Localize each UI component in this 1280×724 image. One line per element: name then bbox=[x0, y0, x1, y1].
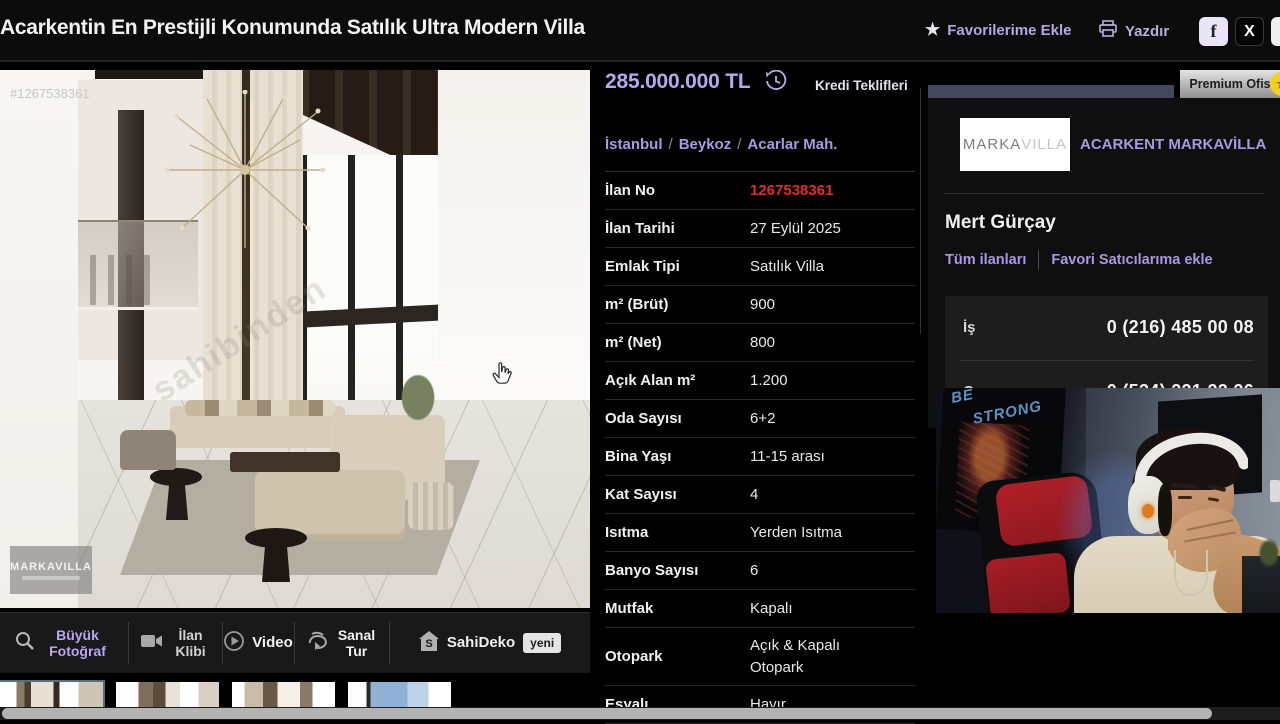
share-icon-partial[interactable] bbox=[1271, 17, 1280, 46]
table-row: Emlak TipiSatılık Villa bbox=[605, 248, 915, 286]
listing-details: 285.000.000 TL Kredi Teklifleri İstanbul… bbox=[605, 70, 915, 724]
breadcrumb-neighborhood[interactable]: Acarlar Mah. bbox=[747, 136, 837, 153]
work-phone-number: 0 (216) 485 00 08 bbox=[1107, 317, 1254, 338]
work-phone-label: İş bbox=[963, 319, 976, 336]
breadcrumb: İstanbul/Beykoz/Acarlar Mah. bbox=[605, 136, 915, 153]
table-row: IsıtmaYerden Isıtma bbox=[605, 514, 915, 552]
table-row: İlan Tarihi27 Eylül 2025 bbox=[605, 210, 915, 248]
add-favorite-seller-link[interactable]: Favori Satıcılarıma ekle bbox=[1051, 252, 1212, 268]
work-phone-row: İş 0 (216) 485 00 08 bbox=[945, 296, 1268, 358]
person-eye bbox=[1178, 496, 1192, 499]
headphone-earcup-dark bbox=[1158, 484, 1172, 536]
table-row: OtoparkAçık & Kapalı Otopark bbox=[605, 628, 915, 686]
photo-toolbar: Büyük Fotoğraf İlan Klibi Video Sanal Tu… bbox=[0, 612, 590, 673]
x-share-icon[interactable]: X bbox=[1235, 17, 1264, 46]
premium-star-icon: ★ bbox=[1270, 72, 1280, 96]
photo-pillows bbox=[185, 400, 335, 416]
wall-outlet bbox=[1270, 480, 1280, 502]
video-camera-icon bbox=[141, 634, 163, 653]
photo-side-table-2-leg bbox=[262, 542, 290, 582]
column-divider bbox=[920, 88, 921, 334]
virtual-tour-button[interactable]: Sanal Tur bbox=[295, 613, 389, 673]
credit-offers-link[interactable]: Kredi Teklifleri bbox=[815, 78, 908, 93]
divider bbox=[1038, 250, 1039, 270]
table-row: Banyo Sayısı6 bbox=[605, 552, 915, 590]
table-row: Oda Sayısı6+2 bbox=[605, 400, 915, 438]
print-label: Yazdır bbox=[1125, 23, 1169, 40]
facebook-share-icon[interactable]: f bbox=[1199, 17, 1228, 46]
table-row: m² (Brüt)900 bbox=[605, 286, 915, 324]
premium-office-badge: Premium Ofis ★ bbox=[1180, 70, 1280, 98]
big-photo-button[interactable]: Büyük Fotoğraf bbox=[0, 613, 128, 673]
virtual-tour-label: Sanal Tur bbox=[336, 627, 378, 659]
print-button[interactable]: Yazdır bbox=[1098, 20, 1169, 42]
photo-coffee-table bbox=[230, 452, 340, 472]
thumbnail-3[interactable] bbox=[232, 682, 335, 708]
star-icon: ★ bbox=[925, 20, 940, 40]
person-necklace bbox=[1174, 550, 1208, 596]
photo-listing-id-watermark: #1267538361 bbox=[10, 86, 90, 101]
price: 285.000.000 TL bbox=[605, 70, 750, 94]
sahideko-button[interactable]: S SahiDeko yeni bbox=[390, 613, 590, 673]
photo-side-table-1-leg bbox=[166, 482, 188, 520]
agency-watermark: MARKAVILLA bbox=[10, 546, 92, 594]
photo-plant bbox=[398, 370, 438, 425]
listing-clip-button[interactable]: İlan Klibi bbox=[129, 613, 222, 673]
headphone-led bbox=[1142, 504, 1154, 518]
poster-text-line1: BE bbox=[950, 388, 976, 407]
video-label: Video bbox=[252, 634, 293, 651]
agent-links: Tüm ilanları Favori Satıcılarıma ekle bbox=[945, 250, 1213, 270]
breadcrumb-city[interactable]: İstanbul bbox=[605, 136, 663, 153]
photo-thumbnails bbox=[0, 682, 590, 708]
thumbnail-4[interactable] bbox=[348, 682, 451, 708]
photo-pouf bbox=[408, 482, 454, 530]
price-history-icon[interactable] bbox=[765, 70, 787, 97]
add-to-favorites-label: Favorilerime Ekle bbox=[947, 22, 1071, 39]
thumbnail-1[interactable] bbox=[0, 682, 103, 708]
header-bar: Acarkentin En Prestijli Konumunda Satılı… bbox=[0, 0, 1280, 62]
photo-left-wall bbox=[0, 70, 78, 608]
agency-logo[interactable]: MARKAVILLA bbox=[960, 118, 1070, 171]
printer-icon bbox=[1098, 20, 1118, 42]
add-to-favorites-button[interactable]: ★ Favorilerime Ekle bbox=[925, 20, 1071, 40]
agent-name: Mert Gürçay bbox=[945, 212, 1056, 234]
magnifier-icon bbox=[15, 631, 34, 655]
horizontal-scrollbar-thumb[interactable] bbox=[2, 708, 1212, 719]
play-circle-icon bbox=[224, 631, 244, 656]
breadcrumb-district[interactable]: Beykoz bbox=[679, 136, 732, 153]
photo-shelf-items bbox=[90, 255, 160, 305]
new-badge: yeni bbox=[523, 633, 561, 653]
all-listings-link[interactable]: Tüm ilanları bbox=[945, 252, 1026, 268]
thumbnail-2[interactable] bbox=[116, 682, 219, 708]
video-button[interactable]: Video bbox=[223, 613, 294, 673]
sahideko-house-icon: S bbox=[419, 631, 439, 656]
page-title: Acarkentin En Prestijli Konumunda Satılı… bbox=[0, 16, 585, 40]
horizontal-scrollbar-track[interactable] bbox=[0, 707, 1280, 720]
table-row: m² (Net)800 bbox=[605, 324, 915, 362]
svg-text:S: S bbox=[425, 638, 432, 650]
agency-card: MARKAVILLA ACARKENT MARKAVİLLA Mert Gürç… bbox=[928, 98, 1280, 428]
agency-name[interactable]: ACARKENT MARKAVİLLA bbox=[1080, 136, 1280, 153]
listing-number: 1267538361 bbox=[750, 180, 833, 202]
main-listing-photo[interactable]: #1267538361 sahibinden MARKAVILLA bbox=[0, 70, 590, 608]
listing-clip-label: İlan Klibi bbox=[171, 627, 211, 659]
price-row: 285.000.000 TL Kredi Teklifleri bbox=[605, 70, 915, 114]
table-row: Açık Alan m²1.200 bbox=[605, 362, 915, 400]
details-table: İlan No1267538361 İlan Tarihi27 Eylül 20… bbox=[605, 171, 915, 724]
sahideko-label: SahiDeko bbox=[447, 634, 515, 651]
table-row: İlan No1267538361 bbox=[605, 172, 915, 210]
photo-armchair bbox=[120, 430, 176, 470]
divider bbox=[944, 193, 1264, 194]
chandelier bbox=[160, 90, 330, 250]
table-row: MutfakKapalı bbox=[605, 590, 915, 628]
sidebar-top-bar bbox=[928, 85, 1174, 98]
plant-hint bbox=[1258, 538, 1280, 568]
table-row: Kat Sayısı4 bbox=[605, 476, 915, 514]
table-row: Bina Yaşı11-15 arası bbox=[605, 438, 915, 476]
big-photo-label: Büyük Fotoğraf bbox=[42, 627, 114, 659]
virtual-tour-icon bbox=[307, 631, 328, 655]
streamer-webcam-overlay: BE STRONG bbox=[936, 388, 1280, 613]
